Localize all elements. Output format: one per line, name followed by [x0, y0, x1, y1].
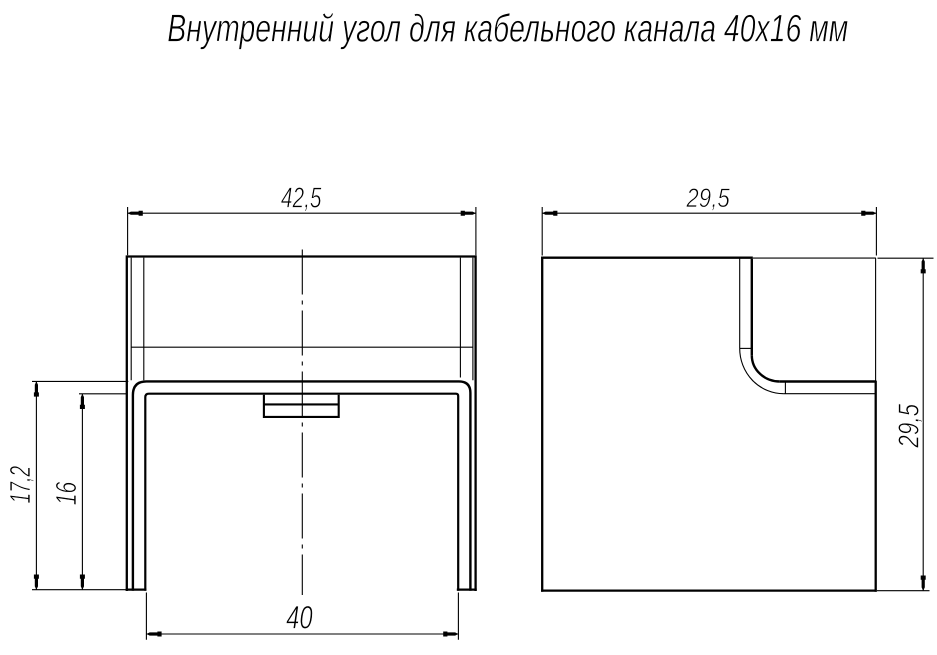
svg-text:29,5: 29,5 — [686, 183, 731, 213]
svg-text:Внутренний угол для кабельного: Внутренний угол для кабельного канала 40… — [167, 8, 848, 51]
svg-text:17,2: 17,2 — [5, 466, 37, 504]
svg-text:42,5: 42,5 — [281, 183, 322, 215]
svg-text:29,5: 29,5 — [893, 403, 925, 448]
svg-text:40: 40 — [286, 599, 313, 635]
svg-text:16: 16 — [51, 481, 83, 505]
